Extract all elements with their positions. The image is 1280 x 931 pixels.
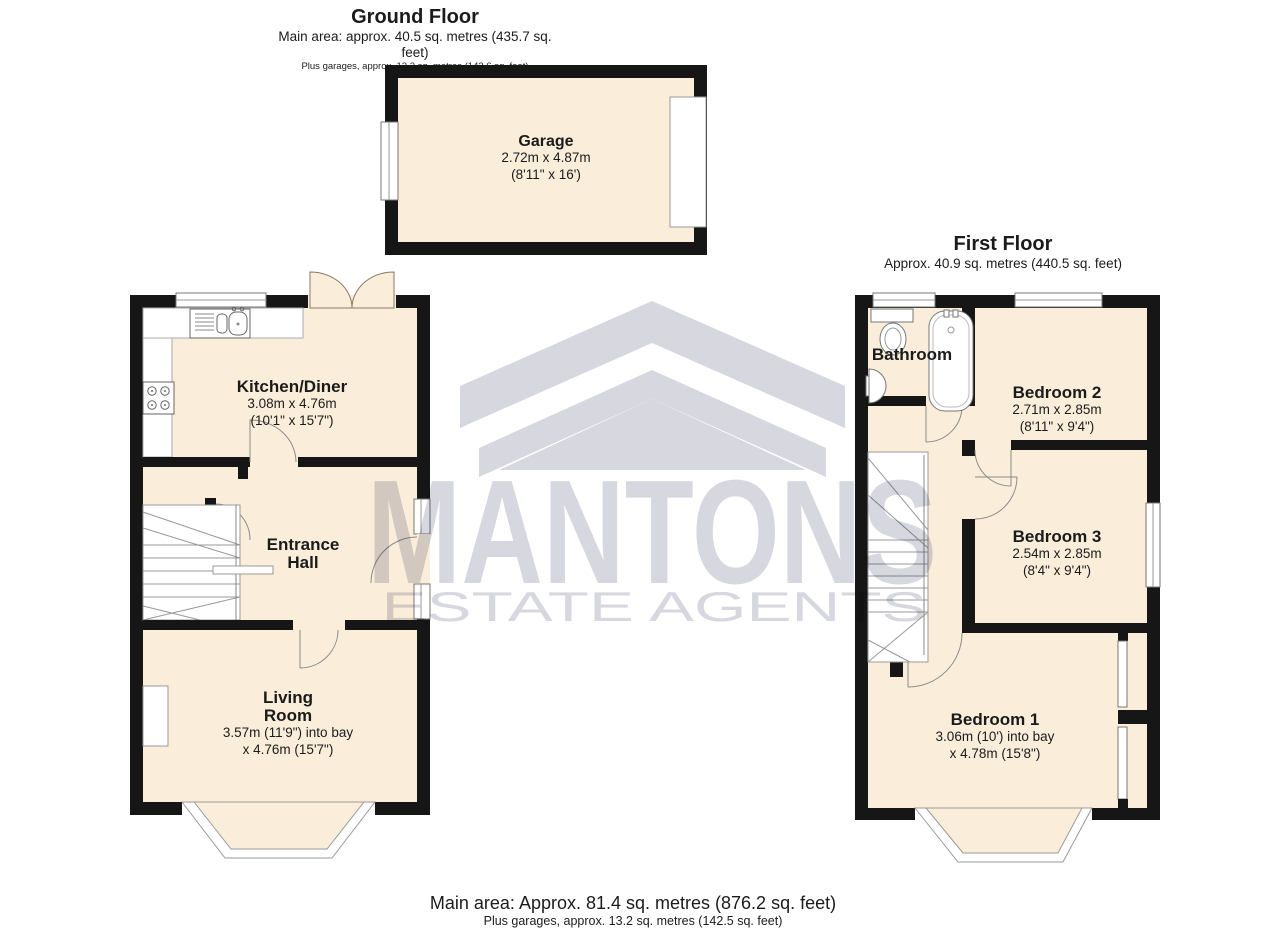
first-floor-area: Approx. 40.9 sq. metres (440.5 sq. feet) bbox=[853, 256, 1153, 272]
ground-floor-header: Ground Floor Main area: approx. 40.5 sq.… bbox=[265, 6, 565, 72]
living-room-label: Living Room 3.57m (11'9") into bay x 4.7… bbox=[168, 689, 408, 758]
room-dims-metric: 2.72m x 4.87m bbox=[426, 150, 666, 167]
room-name: Living bbox=[168, 689, 408, 707]
room-dims-imperial: (8'11" x 16') bbox=[426, 167, 666, 184]
bathroom-label: Bathroom bbox=[852, 346, 972, 364]
bedroom3-label: Bedroom 3 2.54m x 2.85m (8'4" x 9'4") bbox=[957, 528, 1157, 579]
room-dims-imperial: (10'1" x 15'7") bbox=[172, 413, 412, 430]
room-dims-metric: 2.54m x 2.85m bbox=[957, 546, 1157, 563]
bedroom1-label: Bedroom 1 3.06m (10') into bay x 4.78m (… bbox=[875, 711, 1115, 762]
garage-label: Garage 2.72m x 4.87m (8'11" x 16') bbox=[426, 133, 666, 183]
first-floor-header: First Floor Approx. 40.9 sq. metres (440… bbox=[853, 233, 1153, 272]
room-name: Room bbox=[168, 707, 408, 725]
room-dims-metric: 3.08m x 4.76m bbox=[172, 396, 412, 413]
room-dims: x 4.78m (15'8") bbox=[875, 746, 1115, 763]
room-name: Entrance bbox=[223, 536, 383, 554]
room-name: Garage bbox=[426, 133, 666, 150]
room-dims-imperial: (8'11" x 9'4") bbox=[957, 419, 1157, 436]
first-floor-title: First Floor bbox=[853, 233, 1153, 256]
footer: Main area: Approx. 81.4 sq. metres (876.… bbox=[333, 893, 933, 929]
entrance-hall-label: Entrance Hall bbox=[223, 536, 383, 572]
room-name: Hall bbox=[223, 554, 383, 572]
kitchen-label: Kitchen/Diner 3.08m x 4.76m (10'1" x 15'… bbox=[172, 378, 412, 429]
floorplan-canvas: MANTONS ESTATE AGENTS Ground Floor Main … bbox=[0, 0, 1280, 931]
room-name: Kitchen/Diner bbox=[172, 378, 412, 396]
room-dims-metric: 2.71m x 2.85m bbox=[957, 402, 1157, 419]
room-name: Bedroom 1 bbox=[875, 711, 1115, 729]
footer-garage-area: Plus garages, approx. 13.2 sq. metres (1… bbox=[333, 914, 933, 929]
room-name: Bedroom 3 bbox=[957, 528, 1157, 546]
ground-floor-title: Ground Floor bbox=[265, 6, 565, 29]
watermark-tagline: ESTATE AGENTS bbox=[382, 583, 927, 630]
room-dims-imperial: (8'4" x 9'4") bbox=[957, 563, 1157, 580]
ground-floor-garage-area: Plus garages, approx. 13.2 sq. metres (1… bbox=[265, 61, 565, 72]
room-dims: x 4.76m (15'7") bbox=[168, 742, 408, 759]
ground-floor-area: Main area: approx. 40.5 sq. metres (435.… bbox=[265, 29, 565, 61]
room-dims: 3.06m (10') into bay bbox=[875, 729, 1115, 746]
room-name: Bedroom 2 bbox=[957, 384, 1157, 402]
footer-main-area: Main area: Approx. 81.4 sq. metres (876.… bbox=[333, 893, 933, 914]
room-dims: 3.57m (11'9") into bay bbox=[168, 725, 408, 742]
bedroom2-label: Bedroom 2 2.71m x 2.85m (8'11" x 9'4") bbox=[957, 384, 1157, 435]
room-name: Bathroom bbox=[852, 346, 972, 364]
